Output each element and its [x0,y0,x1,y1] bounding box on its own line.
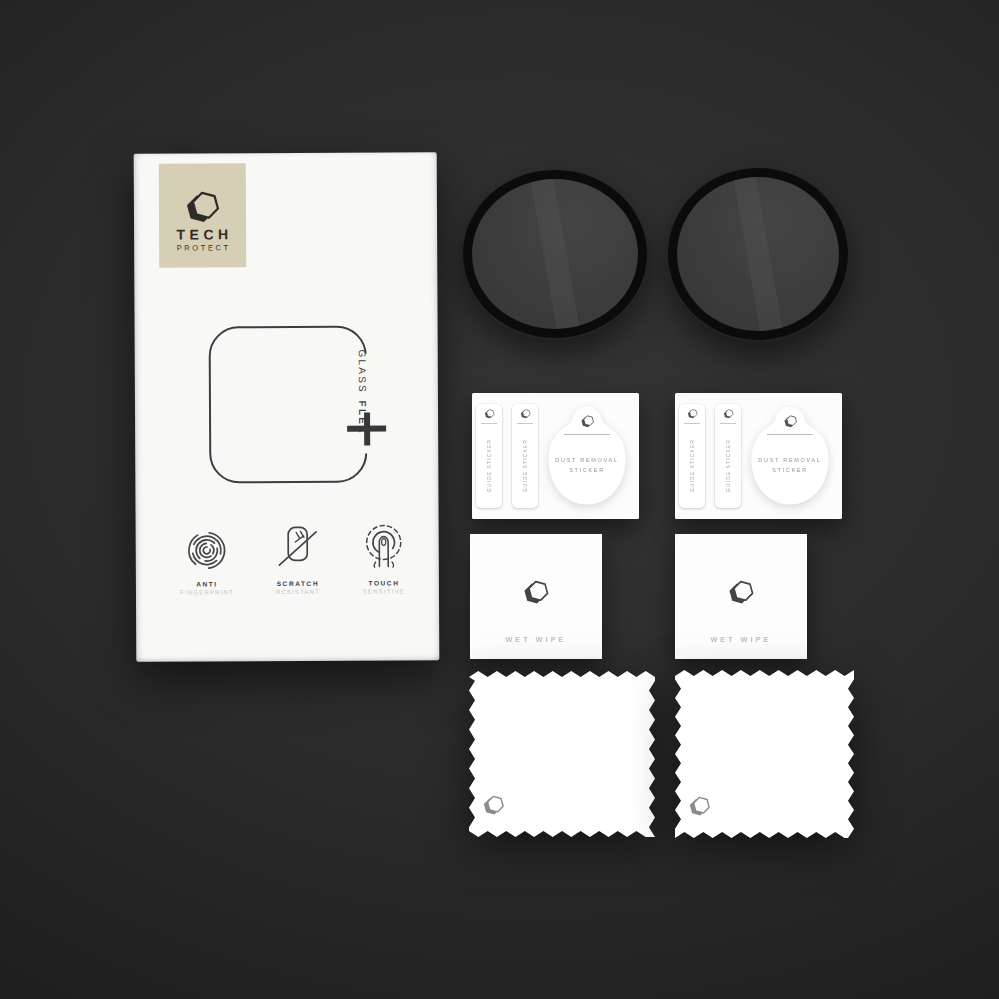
feature-anti-fingerprint: ANTI FINGERPRINT [161,523,253,595]
tech-protect-hexagon-logo-icon [688,796,711,817]
dust-removal-label-line2: STICKER [772,467,808,473]
feature-touch-sensitive: TOUCH SENSITIVE [338,522,430,594]
scratch-resistant-icon [276,523,320,573]
divider-line [564,434,610,435]
tech-protect-hexagon-logo-icon [184,190,221,224]
dust-removal-label-line1: DUST REMOVAL [555,457,618,463]
product-photo-scene: TECH PROTECT GLASS FLEX [0,0,999,999]
feature-subtitle: RESISTANT [276,589,320,595]
dust-removal-sticker: DUST REMOVAL STICKER [546,404,628,507]
cloth-surface [675,670,854,838]
guide-sticker-label: GUIDE STICKER [689,439,695,492]
guide-sticker: GUIDE STICKER [476,404,502,508]
brand-name-top: TECH [172,226,232,242]
wet-wipe-label: WET WIPE [506,636,567,643]
tech-protect-hexagon-logo-icon [723,409,734,419]
tech-protect-hexagon-logo-icon [783,415,798,428]
feature-scratch-resistant: SCRATCH RESISTANT [252,523,344,595]
wet-wipe-2: WET WIPE [675,534,807,659]
tech-protect-hexagon-logo-icon [520,409,531,419]
product-word-glass: GLASS [357,350,368,394]
guide-sticker: GUIDE STICKER [715,404,741,508]
guide-sticker-label: GUIDE STICKER [725,439,731,492]
tech-protect-hexagon-logo-icon [482,795,505,816]
divider-line [767,434,813,435]
feature-subtitle: SENSITIVE [363,588,405,594]
feature-title: TOUCH [368,579,399,586]
guide-sticker: GUIDE STICKER [679,404,705,508]
retail-box: TECH PROTECT GLASS FLEX [134,152,440,662]
tech-protect-hexagon-logo-icon [727,580,755,605]
fingerprint-icon [185,523,229,573]
wet-wipe-1: WET WIPE [470,534,602,659]
tech-protect-hexagon-logo-icon [522,580,550,605]
microfiber-cloth-1 [469,671,655,837]
dust-removal-sticker: DUST REMOVAL STICKER [749,404,831,507]
dust-removal-label-line2: STICKER [569,467,605,473]
sticker-sheet-1: GUIDE STICKER GUIDE STICKER DUST REMOVAL… [472,393,639,519]
guide-sticker-label: GUIDE STICKER [486,439,492,492]
tech-protect-hexagon-logo-icon [580,415,595,428]
microfiber-cloth-2 [675,670,854,838]
wet-wipe-label: WET WIPE [711,636,772,643]
glass-protector-1 [463,170,647,338]
sticker-sheet-2: GUIDE STICKER GUIDE STICKER DUST REMOVAL… [675,393,842,519]
brand-badge: TECH PROTECT [159,163,247,267]
dust-removal-label-line1: DUST REMOVAL [758,457,821,463]
feature-title: ANTI [196,580,218,587]
watch-screen-outline [209,326,368,484]
feature-subtitle: FINGERPRINT [180,589,234,595]
cloth-surface [469,671,655,837]
tech-protect-hexagon-logo-icon [484,409,495,419]
guide-sticker-label: GUIDE STICKER [522,439,528,492]
glass-protector-2 [668,168,848,340]
tech-protect-hexagon-logo-icon [687,409,698,419]
guide-sticker: GUIDE STICKER [512,404,538,508]
plus-vertical-bar [364,412,370,445]
touch-sensitive-icon [361,522,407,572]
brand-name-bottom: PROTECT [175,243,231,252]
feature-title: SCRATCH [277,580,320,587]
